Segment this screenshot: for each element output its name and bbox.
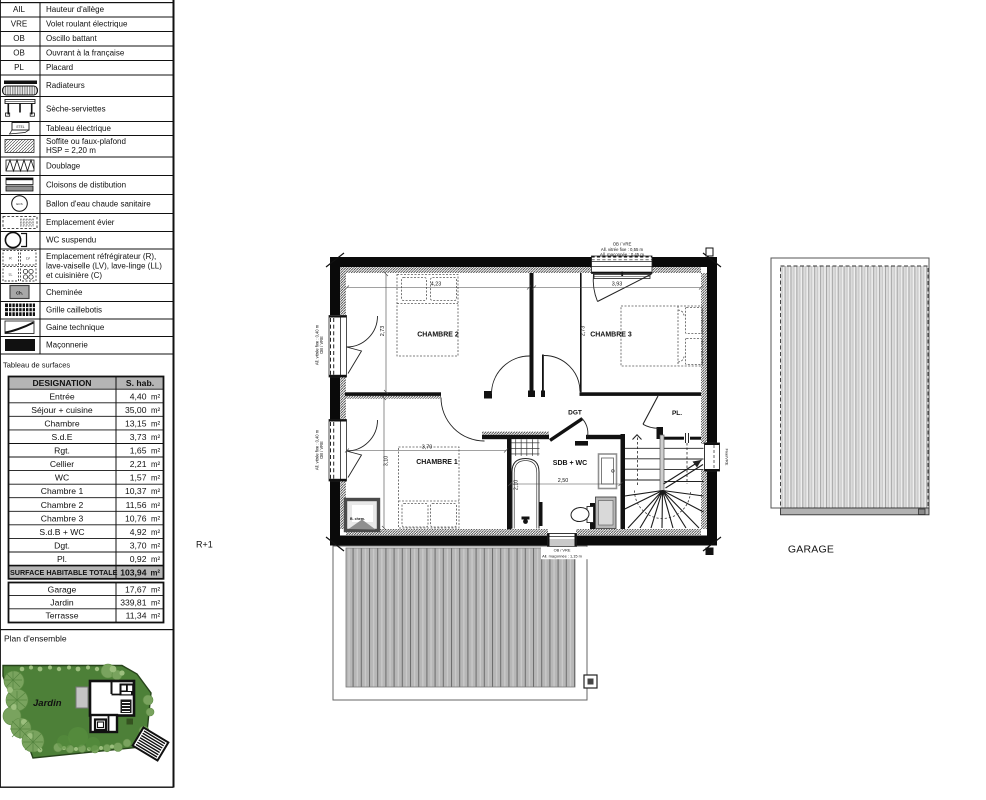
svg-text:Sèche-serviettes: Sèche-serviettes — [46, 105, 106, 114]
svg-text:B. chem.: B. chem. — [350, 517, 365, 521]
svg-text:Volet roulant électrique: Volet roulant électrique — [46, 20, 128, 29]
svg-text:m²: m² — [151, 555, 160, 564]
svg-text:Tableau de surfaces: Tableau de surfaces — [3, 361, 70, 370]
svg-text:m²: m² — [151, 568, 161, 577]
svg-text:11,56: 11,56 — [126, 500, 147, 510]
svg-text:HSP = 2,20 m: HSP = 2,20 m — [46, 146, 96, 155]
svg-text:m²: m² — [151, 542, 160, 551]
svg-text:Jardin: Jardin — [33, 698, 62, 709]
svg-text:All. vitrée fixe : 0,55 m: All. vitrée fixe : 0,55 m — [601, 247, 644, 252]
svg-text:2,50: 2,50 — [558, 478, 569, 484]
svg-text:339,81: 339,81 — [120, 598, 147, 608]
svg-text:R+1: R+1 — [196, 540, 213, 550]
svg-text:11,34: 11,34 — [126, 611, 147, 621]
svg-text:R: R — [9, 257, 12, 261]
svg-text:10,37: 10,37 — [125, 486, 147, 496]
svg-text:Chambre 1: Chambre 1 — [41, 486, 84, 496]
svg-text:OB / VRE: OB / VRE — [319, 441, 324, 459]
svg-text:Emplacement réfrégirateur (R),: Emplacement réfrégirateur (R), — [46, 252, 156, 261]
svg-text:3,70: 3,70 — [422, 445, 433, 451]
svg-text:LL: LL — [9, 273, 13, 277]
svg-text:PL.: PL. — [672, 410, 682, 417]
svg-text:Plan d'ensemble: Plan d'ensemble — [4, 634, 67, 644]
svg-text:S.d.E: S.d.E — [51, 432, 72, 442]
svg-text:lave-vaiselle (LV), lave-linge: lave-vaiselle (LV), lave-linge (LL) — [46, 262, 162, 271]
svg-text:Grille caillebotis: Grille caillebotis — [46, 306, 102, 315]
svg-text:m²: m² — [151, 460, 160, 469]
svg-text:CHAMBRE 2: CHAMBRE 2 — [417, 332, 459, 339]
svg-text:13,15: 13,15 — [125, 418, 147, 428]
svg-text:Doublage: Doublage — [46, 162, 81, 171]
svg-text:Chambre 3: Chambre 3 — [41, 513, 84, 523]
svg-text:Terrasse: Terrasse — [46, 611, 79, 621]
svg-text:m²: m² — [151, 474, 160, 483]
svg-text:17,67: 17,67 — [125, 584, 147, 594]
svg-text:1,57: 1,57 — [130, 473, 147, 483]
svg-text:Cloisons de distibution: Cloisons de distibution — [46, 181, 126, 190]
svg-text:Fixe/VRE: Fixe/VRE — [725, 449, 730, 466]
svg-text:m²: m² — [151, 599, 160, 608]
svg-text:4,40: 4,40 — [130, 391, 147, 401]
svg-text:1,65: 1,65 — [130, 446, 147, 456]
svg-text:Entrée: Entrée — [49, 391, 75, 401]
svg-text:4,23: 4,23 — [431, 282, 442, 288]
svg-text:Radiateurs: Radiateurs — [46, 81, 85, 90]
svg-text:LV: LV — [26, 257, 31, 261]
svg-text:m²: m² — [151, 406, 160, 415]
svg-text:OB / VRE: OB / VRE — [319, 336, 324, 354]
svg-text:m²: m² — [151, 447, 160, 456]
svg-text:m²: m² — [151, 528, 160, 537]
svg-text:ETEL: ETEL — [17, 125, 25, 129]
svg-text:OB / VRE: OB / VRE — [613, 241, 632, 246]
svg-text:SDB + WC: SDB + WC — [553, 460, 587, 467]
svg-text:Ballon d'eau chaude sanitaire: Ballon d'eau chaude sanitaire — [46, 200, 151, 209]
svg-text:Tableau électrique: Tableau électrique — [46, 124, 111, 133]
svg-text:4,92: 4,92 — [130, 527, 147, 537]
svg-text:Pl.: Pl. — [57, 554, 67, 564]
svg-text:CHAMBRE 1: CHAMBRE 1 — [416, 459, 458, 466]
svg-text:Soffite ou faux-plafond: Soffite ou faux-plafond — [46, 137, 126, 146]
svg-text:OB: OB — [13, 49, 25, 58]
svg-text:2,73: 2,73 — [380, 326, 386, 337]
svg-text:m²: m² — [151, 392, 160, 401]
svg-text:AIL: AIL — [13, 5, 26, 14]
svg-text:WC suspendu: WC suspendu — [46, 236, 96, 245]
svg-text:OB / VRE: OB / VRE — [554, 548, 571, 553]
svg-text:WC: WC — [55, 473, 69, 483]
svg-text:3,73: 3,73 — [130, 432, 147, 442]
svg-text:2,10: 2,10 — [514, 480, 520, 491]
svg-text:et cuisinière (C): et cuisinière (C) — [46, 271, 102, 280]
svg-text:35,00: 35,00 — [125, 405, 147, 415]
svg-text:Ch.: Ch. — [16, 291, 23, 296]
svg-text:VRE: VRE — [11, 20, 27, 29]
svg-text:SURFACE HABITABLE TOTALE: SURFACE HABITABLE TOTALE — [10, 568, 118, 577]
svg-text:0,92: 0,92 — [130, 554, 147, 564]
svg-text:Chambre: Chambre — [44, 418, 80, 428]
svg-text:CHAMBRE 3: CHAMBRE 3 — [590, 332, 632, 339]
svg-text:Oscillo battant: Oscillo battant — [46, 34, 97, 43]
svg-text:2,73: 2,73 — [581, 326, 587, 337]
svg-text:Placard: Placard — [46, 63, 73, 72]
svg-text:Gaine technique: Gaine technique — [46, 323, 105, 332]
svg-text:m²: m² — [151, 514, 160, 523]
svg-text:3,10: 3,10 — [384, 456, 390, 467]
svg-text:GARAGE: GARAGE — [788, 544, 834, 556]
svg-text:m²: m² — [151, 612, 160, 621]
svg-text:2,21: 2,21 — [130, 459, 147, 469]
svg-text:103,94: 103,94 — [120, 567, 147, 577]
svg-text:Rgt.: Rgt. — [54, 446, 70, 456]
svg-text:S. hab.: S. hab. — [126, 378, 154, 388]
svg-text:DGT: DGT — [568, 410, 582, 417]
svg-text:3,70: 3,70 — [130, 541, 147, 551]
svg-text:Chambre 2: Chambre 2 — [41, 500, 84, 510]
svg-text:m²: m² — [151, 585, 160, 594]
svg-text:Maçonnerie: Maçonnerie — [46, 341, 88, 350]
svg-text:Cellier: Cellier — [50, 459, 74, 469]
svg-text:10,76: 10,76 — [125, 513, 147, 523]
svg-text:Dgt.: Dgt. — [54, 541, 70, 551]
svg-text:m²: m² — [151, 433, 160, 442]
svg-text:m²: m² — [151, 487, 160, 496]
svg-text:Hauteur d'allège: Hauteur d'allège — [46, 5, 105, 14]
svg-text:Jardin: Jardin — [50, 598, 74, 608]
svg-text:m²: m² — [151, 419, 160, 428]
svg-text:OB: OB — [13, 34, 25, 43]
svg-text:All. maçonnée : 1,15 m: All. maçonnée : 1,15 m — [542, 554, 582, 559]
svg-text:Séjour + cuisine: Séjour + cuisine — [31, 405, 93, 415]
svg-text:All. maçonnée : 0,45 m: All. maçonnée : 0,45 m — [600, 252, 644, 257]
svg-text:Emplacement évier: Emplacement évier — [46, 218, 115, 227]
svg-text:DESIGNATION: DESIGNATION — [32, 378, 91, 388]
svg-text:PL: PL — [14, 63, 24, 72]
svg-text:Garage: Garage — [48, 584, 77, 594]
svg-text:3,93: 3,93 — [612, 282, 623, 288]
svg-text:m²: m² — [151, 501, 160, 510]
svg-text:Cheminée: Cheminée — [46, 288, 83, 297]
svg-text:ECS: ECS — [16, 202, 22, 206]
svg-text:Ouvrant à la française: Ouvrant à la française — [46, 49, 125, 58]
svg-text:S.d.B + WC: S.d.B + WC — [39, 527, 84, 537]
